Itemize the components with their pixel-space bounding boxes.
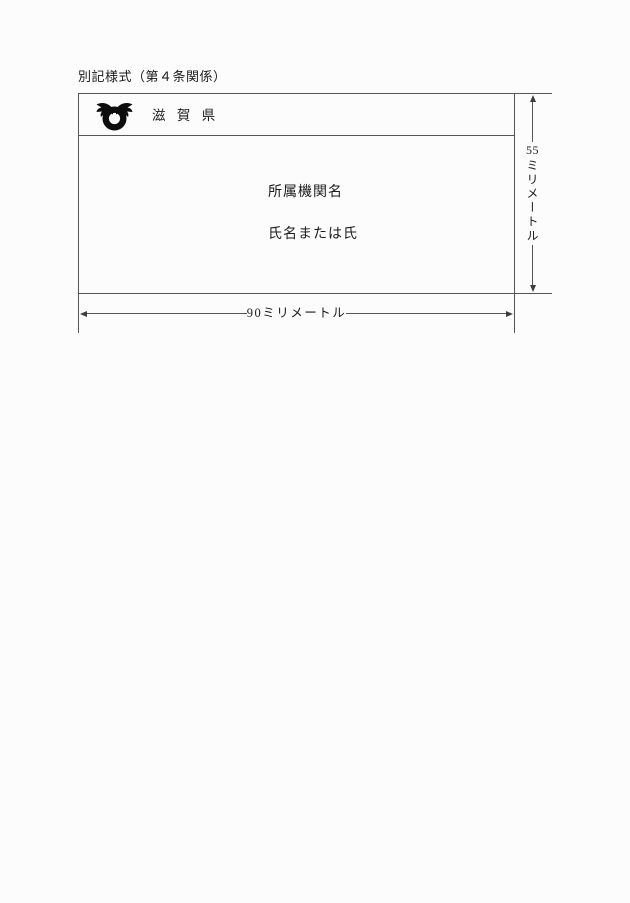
height-unit-text: ミリメートル [524,159,541,243]
height-dimension-annotation: 55 ミリメートル [526,95,539,292]
shiga-prefecture-emblem-icon [96,102,133,131]
dimension-line-segment [532,245,533,285]
arrow-down-icon [530,285,536,292]
width-dimension-annotation: 90ミリメートル [80,306,513,321]
arrow-right-icon [506,311,513,317]
extension-line-bottom-left-tick [78,294,79,333]
height-dimension-label: 55 ミリメートル [524,142,541,245]
extension-line-bottom-right-tick [514,294,515,333]
arrow-left-icon [80,311,87,317]
badge-header-band: 滋 賀 県 [79,94,514,136]
dimension-line-segment [87,313,247,314]
dimension-line-segment [346,313,506,314]
prefecture-name-label: 滋 賀 県 [152,109,219,123]
dimension-line-segment [532,102,533,142]
organization-placeholder-label: 所属機関名 [268,185,343,200]
width-dimension-label: 90ミリメートル [247,306,347,321]
form-title: 別記様式（第４条関係） [78,69,227,85]
extension-line-top-right [515,93,552,94]
height-value-text: 55 [526,144,539,157]
id-badge-frame: 滋 賀 県 所属機関名 氏名または氏 [78,93,515,294]
arrow-up-icon [530,95,536,102]
person-name-placeholder-label: 氏名または氏 [268,227,358,242]
extension-line-bottom-right [515,293,552,294]
